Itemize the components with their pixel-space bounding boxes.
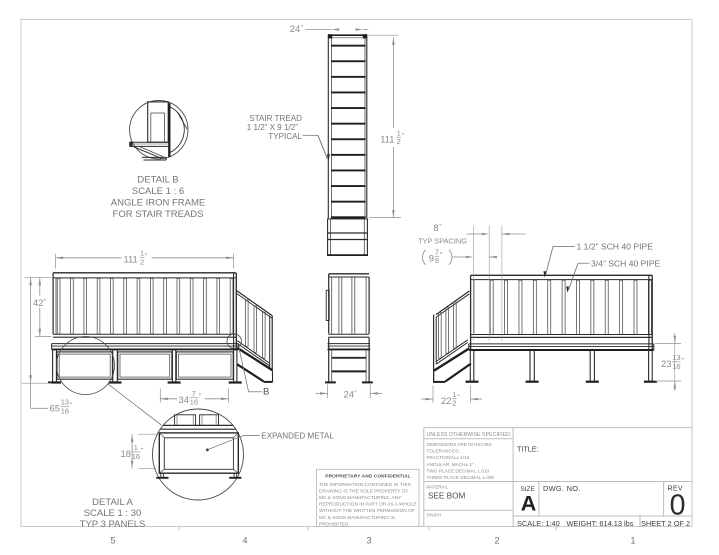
svg-text:3/4” SCH 40 PIPE: 3/4” SCH 40 PIPE [591, 258, 661, 268]
svg-text:8: 8 [435, 256, 439, 265]
svg-text:MC & SONS MANUFACTURING. ANY: MC & SONS MANUFACTURING. ANY [319, 495, 402, 501]
svg-text:TYP 3 PANELS: TYP 3 PANELS [80, 519, 146, 530]
svg-text:A: A [521, 492, 537, 516]
svg-text:TYP SPACING: TYP SPACING [418, 236, 467, 245]
svg-text:SCALE 1 : 30: SCALE 1 : 30 [84, 508, 142, 519]
svg-text:1 1/2” X 9 1/2”: 1 1/2” X 9 1/2” [247, 123, 299, 132]
svg-text:PROHIBITED.: PROHIBITED. [319, 521, 350, 527]
svg-text:4: 4 [242, 536, 247, 546]
svg-text:B: B [263, 386, 269, 397]
svg-text:24: 24 [344, 388, 354, 399]
svg-text:MC & SONS MANUFACTURING IS: MC & SONS MANUFACTURING IS [319, 515, 395, 521]
svg-text:TITLE:: TITLE: [517, 445, 539, 454]
svg-text:DETAIL A: DETAIL A [92, 497, 133, 508]
svg-text:DRAWING IS THE SOLE PROPERTY O: DRAWING IS THE SOLE PROPERTY OF [319, 488, 408, 494]
svg-text:SEE BOM: SEE BOM [428, 492, 465, 501]
svg-text:13: 13 [672, 353, 680, 362]
svg-text:UNLESS OTHERWISE SPECIFIED:: UNLESS OTHERWISE SPECIFIED: [427, 432, 512, 438]
svg-text:16: 16 [672, 362, 680, 371]
svg-text:ANGLE IRON FRAME: ANGLE IRON FRAME [111, 198, 206, 209]
svg-text:111: 111 [380, 133, 394, 144]
svg-text:SCALE 1 : 6: SCALE 1 : 6 [132, 186, 184, 197]
svg-text:FOR STAIR TREADS: FOR STAIR TREADS [113, 209, 204, 220]
svg-text:FRACTIONAL± 1/16: FRACTIONAL± 1/16 [427, 455, 470, 460]
svg-text:1: 1 [452, 390, 456, 399]
svg-text:16: 16 [61, 406, 69, 415]
svg-text:DETAIL B: DETAIL B [137, 175, 178, 186]
svg-text:ANGULAR: MACH± 1°: ANGULAR: MACH± 1° [427, 462, 475, 467]
svg-text:42: 42 [33, 297, 43, 308]
svg-text:SCALE: 1:40: SCALE: 1:40 [517, 519, 560, 528]
svg-text:34: 34 [179, 394, 189, 405]
svg-text:1: 1 [140, 249, 144, 258]
svg-text:1 1/2” SCH 40 PIPE: 1 1/2” SCH 40 PIPE [577, 242, 654, 252]
svg-text:1: 1 [134, 443, 138, 452]
svg-text:1: 1 [397, 128, 401, 137]
svg-text:STAIR TREAD: STAIR TREAD [249, 114, 302, 123]
svg-text:MATERIAL: MATERIAL [427, 485, 449, 490]
svg-text:9: 9 [429, 252, 434, 263]
svg-text:WEIGHT: 614.13 lbs: WEIGHT: 614.13 lbs [567, 519, 634, 528]
svg-text:DIMENSIONS ARE IN INCHES: DIMENSIONS ARE IN INCHES [427, 442, 492, 447]
svg-text:2: 2 [494, 536, 499, 546]
svg-text:3: 3 [366, 536, 371, 546]
svg-text:2: 2 [452, 399, 456, 408]
svg-text:TYPICAL: TYPICAL [268, 132, 302, 141]
svg-text:13: 13 [61, 398, 69, 407]
svg-text:0: 0 [670, 489, 686, 521]
svg-text:DWG. NO.: DWG. NO. [543, 484, 581, 493]
svg-text:PROPRIETARY AND CONFIDENTIAL: PROPRIETARY AND CONFIDENTIAL [325, 473, 410, 479]
svg-text:2: 2 [140, 257, 144, 266]
svg-text:5: 5 [110, 536, 115, 546]
svg-text:7: 7 [435, 247, 439, 256]
svg-text:8: 8 [433, 222, 438, 233]
svg-text:FINISH: FINISH [427, 513, 441, 518]
svg-text:TOLERANCES:: TOLERANCES: [427, 449, 460, 454]
svg-text:7: 7 [192, 389, 196, 398]
svg-text:18: 18 [121, 448, 131, 459]
svg-text:WITHOUT THE WRITTEN PERMISSION: WITHOUT THE WRITTEN PERMISSION OF [319, 508, 415, 514]
svg-text:111: 111 [124, 254, 138, 265]
svg-text:SHEET 2 OF 2: SHEET 2 OF 2 [641, 519, 690, 528]
svg-text:TWO PLACE DECIMAL ±.010: TWO PLACE DECIMAL ±.010 [427, 468, 490, 473]
svg-text:REPRODUCTION IN PART OR AS A W: REPRODUCTION IN PART OR AS A WHOLE [319, 502, 417, 508]
svg-text:16: 16 [132, 452, 140, 461]
svg-text:16: 16 [190, 398, 198, 407]
svg-text:THREE PLACE DECIMAL ±.005: THREE PLACE DECIMAL ±.005 [427, 475, 495, 480]
svg-text:23: 23 [661, 358, 671, 369]
svg-text:65: 65 [50, 403, 60, 414]
svg-text:THE INFORMATION CONTAINED IN T: THE INFORMATION CONTAINED IN THIS [319, 482, 411, 488]
svg-text:1: 1 [630, 536, 635, 546]
svg-text:EXPANDED METAL: EXPANDED METAL [261, 432, 334, 441]
svg-text:22: 22 [441, 395, 451, 406]
svg-text:2: 2 [397, 137, 401, 146]
svg-text:24: 24 [290, 23, 300, 34]
